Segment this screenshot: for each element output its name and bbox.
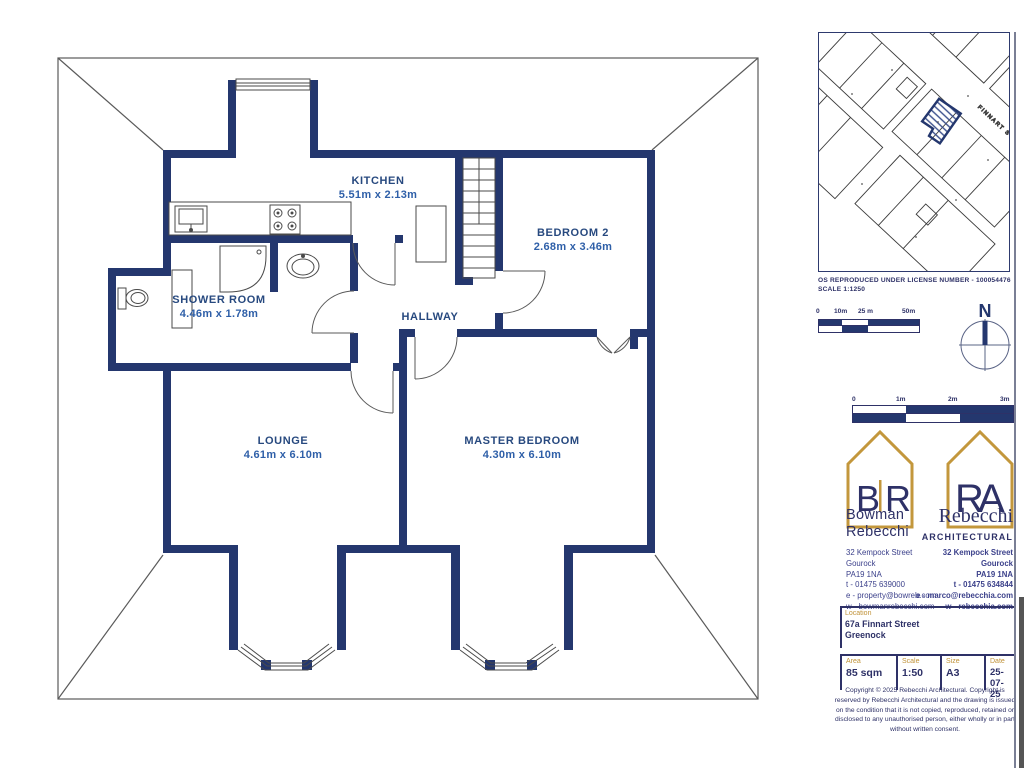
scalebar-label-0: 0 (852, 396, 856, 403)
room-dims-master-bedroom: 4.30m x 6.10m (483, 449, 562, 461)
scalebar-row2 (852, 413, 1014, 423)
sheet-right-border (1014, 32, 1016, 768)
map-scalebar-row2 (818, 325, 920, 333)
kitchen-sink (175, 206, 207, 232)
shower-enclosure (220, 246, 266, 292)
area-header: Area (846, 658, 896, 665)
room-label-bedroom2: BEDROOM 2 (537, 227, 609, 239)
hob-icon (270, 205, 300, 234)
address-right-postcode: PA19 1NA (900, 570, 1013, 581)
room-label-master-bedroom: MASTER BEDROOM (464, 435, 579, 447)
area-value: 85 sqm (846, 667, 896, 679)
os-license-line: OS REPRODUCED UNDER LICENSE NUMBER - 100… (818, 276, 1018, 285)
location-line2: Greenock (845, 630, 886, 640)
room-label-hallway: HALLWAY (402, 311, 459, 323)
location-left-border (840, 606, 842, 648)
compass-north-label: N (979, 301, 992, 321)
drawing-sheet: KITCHEN 5.51m x 2.13m BEDROOM 2 2.68m x … (0, 0, 1024, 768)
copyright-text: Copyright © 2025 Rebecchi Architectural.… (834, 686, 1016, 735)
brand-name-right: Rebecchi (880, 505, 1013, 528)
size-header: Size (946, 658, 984, 665)
bay-window-lounge (238, 644, 335, 670)
chimney-window (236, 79, 310, 90)
date-header: Date (990, 658, 1014, 665)
map-scalebar-label-0: 0 (816, 308, 820, 315)
map-scalebar-label-50m: 50m (902, 308, 915, 315)
table-cell-date: Date 25-07-25 (984, 656, 1014, 690)
room-dims-kitchen: 5.51m x 2.13m (339, 189, 418, 201)
room-label-lounge: LOUNGE (258, 435, 309, 447)
scalebar-label-3m: 3m (1000, 396, 1010, 403)
floor-plan: KITCHEN 5.51m x 2.13m BEDROOM 2 2.68m x … (56, 56, 762, 702)
location-line1: 67a Finnart Street (845, 619, 919, 629)
address-right-town: Gourock (900, 559, 1013, 570)
room-dims-bedroom2: 2.68m x 3.46m (534, 241, 613, 253)
map-scalebar-label-10m: 10m (834, 308, 847, 315)
site-map: FINNART ST (818, 32, 1010, 272)
scale-value: 1:50 (902, 667, 940, 679)
brand-subtitle-right: ARCHITECTURAL (880, 532, 1013, 542)
stairs (463, 158, 495, 278)
scalebar-label-1m: 1m (896, 396, 906, 403)
address-right-email: e - marco@rebecchia.com (900, 591, 1013, 602)
table-cell-area: Area 85 sqm (840, 656, 896, 690)
room-dims-lounge: 4.61m x 6.10m (244, 449, 323, 461)
table-cell-scale: Scale 1:50 (896, 656, 940, 690)
room-label-kitchen: KITCHEN (351, 175, 404, 187)
address-right-street: 32 Kempock Street (900, 548, 1013, 559)
toilet (118, 288, 148, 309)
compass-icon: N (952, 300, 1018, 372)
scalebar-label-2m: 2m (948, 396, 958, 403)
room-label-shower-room: SHOWER ROOM (172, 294, 265, 306)
table-cell-size: Size A3 (940, 656, 984, 690)
address-right-phone: t - 01475 634844 (900, 580, 1013, 591)
bay-window-master (460, 644, 559, 670)
address-right: 32 Kempock Street Gourock PA19 1NA t - 0… (900, 548, 1013, 613)
location-label: Location (845, 610, 871, 617)
screen-edge-strip (1019, 597, 1024, 768)
os-scale-line: SCALE 1:1250 (818, 285, 1018, 294)
size-value: A3 (946, 667, 984, 679)
scale-header: Scale (902, 658, 940, 665)
walls (108, 80, 655, 670)
divider-line (840, 606, 1014, 608)
map-scalebar-label-25m: 25 m (858, 308, 873, 315)
wash-basin (287, 254, 319, 278)
room-dims-shower-room: 4.46m x 1.78m (180, 308, 259, 320)
